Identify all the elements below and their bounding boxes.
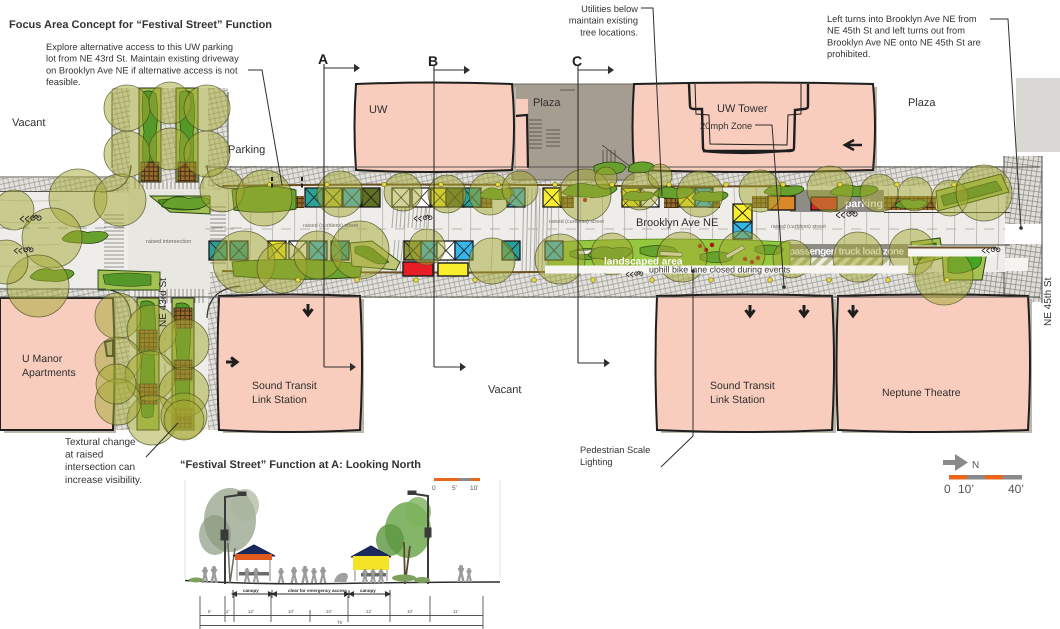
- svg-text:Neptune Theatre: Neptune Theatre: [882, 387, 961, 399]
- svg-text:intersection can: intersection can: [65, 462, 135, 473]
- svg-text:Link Station: Link Station: [710, 394, 765, 406]
- svg-text:raised (curbless) street: raised (curbless) street: [303, 223, 358, 229]
- svg-text:11’: 11’: [453, 609, 459, 614]
- svg-text:Utilities below: Utilities below: [581, 4, 638, 14]
- svg-text:Explore alternative access to: Explore alternative access to this UW pa…: [46, 42, 233, 52]
- svg-text:“Festival Street” Function at: “Festival Street” Function at A: Looking…: [180, 459, 421, 471]
- svg-text:6’: 6’: [208, 609, 212, 614]
- svg-text:B: B: [428, 53, 438, 69]
- svg-text:12’: 12’: [248, 609, 254, 614]
- svg-text:76’: 76’: [337, 620, 343, 625]
- svg-text:clear for emergency access: clear for emergency access: [288, 588, 348, 593]
- svg-text:NE 43rd St: NE 43rd St: [158, 278, 169, 327]
- svg-text:Left turns into Brooklyn Ave N: Left turns into Brooklyn Ave NE from: [827, 14, 977, 24]
- svg-text:feasible.: feasible.: [46, 77, 81, 87]
- svg-text:N: N: [972, 460, 979, 471]
- svg-text:5’: 5’: [452, 485, 458, 492]
- svg-text:canopy: canopy: [243, 588, 259, 593]
- svg-text:Pedestrian Scale: Pedestrian Scale: [580, 445, 650, 455]
- svg-text:10’: 10’: [470, 485, 479, 492]
- svg-text:Brooklyn Ave NE: Brooklyn Ave NE: [636, 217, 718, 229]
- svg-text:Plaza: Plaza: [533, 97, 561, 109]
- svg-text:C: C: [572, 53, 582, 69]
- svg-text:A: A: [318, 51, 328, 67]
- svg-text:Lighting: Lighting: [580, 457, 613, 467]
- svg-text:Vacant: Vacant: [488, 384, 521, 396]
- svg-text:Link Station: Link Station: [252, 394, 307, 406]
- svg-text:canopy: canopy: [360, 588, 376, 593]
- svg-text:Sound Transit: Sound Transit: [710, 380, 775, 392]
- svg-text:Parking: Parking: [228, 144, 265, 156]
- svg-text:increase visibility.: increase visibility.: [65, 475, 142, 486]
- svg-text:UW: UW: [369, 104, 388, 116]
- svg-text:at raised: at raised: [65, 450, 103, 461]
- svg-text:10’: 10’: [407, 609, 413, 614]
- svg-text:lot from NE 43rd St. Maintain: lot from NE 43rd St. Maintain existing d…: [46, 54, 239, 64]
- svg-text:Plaza: Plaza: [908, 97, 936, 109]
- svg-text:on Brooklyn Ave NE if alternat: on Brooklyn Ave NE if alternative access…: [46, 65, 238, 75]
- svg-text:Sound Transit: Sound Transit: [252, 380, 317, 392]
- svg-text:maintain existing: maintain existing: [569, 16, 638, 26]
- svg-text:Apartments: Apartments: [22, 367, 76, 379]
- svg-text:40’: 40’: [1008, 482, 1024, 496]
- svg-text:U Manor: U Manor: [22, 353, 63, 365]
- svg-text:2’: 2’: [226, 609, 230, 614]
- svg-text:10’: 10’: [958, 482, 974, 496]
- svg-text:20mph Zone: 20mph Zone: [700, 121, 752, 131]
- svg-text:uphill bike lane closed during: uphill bike lane closed during events: [649, 265, 791, 275]
- svg-text:Brooklyn Ave NE onto NE 45th S: Brooklyn Ave NE onto NE 45th St are: [827, 37, 981, 47]
- svg-text:UW Tower: UW Tower: [717, 103, 768, 115]
- svg-text:prohibited.: prohibited.: [827, 49, 870, 59]
- svg-text:tree locations.: tree locations.: [580, 27, 638, 37]
- svg-text:12’: 12’: [366, 609, 372, 614]
- svg-text:0: 0: [944, 482, 951, 496]
- svg-text:raised intersection: raised intersection: [146, 238, 191, 245]
- svg-text:0: 0: [432, 485, 436, 492]
- svg-text:10’: 10’: [326, 609, 332, 614]
- svg-text:Vacant: Vacant: [12, 117, 45, 129]
- svg-text:raised (curbless) street: raised (curbless) street: [549, 219, 604, 225]
- svg-text:NE 45th St and left turns out: NE 45th St and left turns out from: [827, 26, 965, 36]
- svg-text:Textural change: Textural change: [65, 437, 136, 448]
- svg-text:10’: 10’: [288, 609, 294, 614]
- svg-text:Focus Area Concept for “Festiv: Focus Area Concept for “Festival Street”…: [9, 19, 272, 31]
- svg-text:NE 45th St: NE 45th St: [1043, 277, 1054, 326]
